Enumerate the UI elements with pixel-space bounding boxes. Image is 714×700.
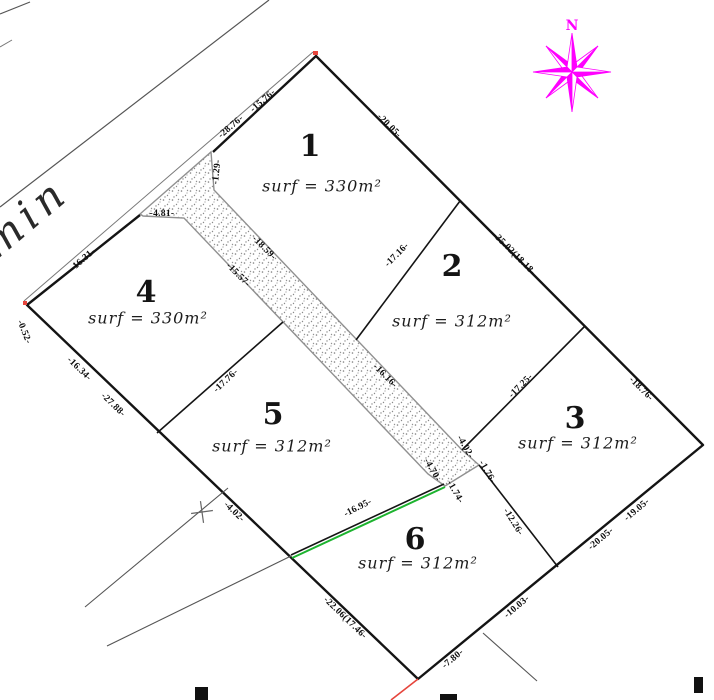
dimension-label: -22.06(17.46- <box>321 594 369 641</box>
lot-number: 4 <box>136 275 157 310</box>
tie-line-bottom-right <box>483 633 537 681</box>
dimension-label: -15.76- <box>249 88 278 115</box>
dimension-label: -1.76- <box>476 459 497 485</box>
compass-north-label: N <box>566 18 579 34</box>
red-boundary-line <box>391 679 418 700</box>
bottom-cutoff-mark-2 <box>440 694 457 700</box>
lot-surface: surf = 312m² <box>212 437 332 456</box>
lot-number: 1 <box>300 129 321 164</box>
lot-number: 6 <box>405 522 426 557</box>
dimension-label: -16.34- <box>65 355 93 383</box>
lot-surface: surf = 312m² <box>392 312 512 331</box>
dimension-label: -18.76- <box>627 375 655 403</box>
lot-number: 2 <box>442 249 463 284</box>
dimension-labels-layer: -15.76--28.76--1.29--4.81--16.31--0.52--… <box>15 88 655 671</box>
adjacent-line-2 <box>107 556 291 646</box>
dimension-label: -0.52- <box>15 319 34 346</box>
bottom-cutoff-mark-1 <box>195 687 208 700</box>
lot-number: 3 <box>565 401 586 436</box>
dimension-label: -4.81- <box>150 209 175 219</box>
survey-plan-drawing: chemin N 1surf = 330m²2surf = 312m²3surf… <box>0 0 714 700</box>
adjacent-line-1 <box>85 488 228 607</box>
survey-cross-mark <box>190 500 215 525</box>
dimension-label: -1.74- <box>444 479 465 505</box>
dimension-label: -1.29- <box>211 159 224 185</box>
dimension-label: -35.02(18.18- <box>490 230 537 277</box>
red-corner-mark-top <box>313 51 318 55</box>
road-label: chemin <box>0 167 78 328</box>
red-corner-mark-left <box>23 301 27 305</box>
bottom-cutoff-mark-3 <box>694 677 703 693</box>
lot-number: 5 <box>263 397 284 432</box>
survey-plan-canvas: chemin N 1surf = 330m²2surf = 312m²3surf… <box>0 0 714 700</box>
lot-surface: surf = 312m² <box>358 554 478 573</box>
dimension-label: -12.26- <box>501 507 525 538</box>
lot-surface: surf = 312m² <box>518 434 638 453</box>
dimension-label: -17.25- <box>507 372 535 400</box>
road-corner-line <box>0 2 30 14</box>
lot-surface: surf = 330m² <box>262 177 382 196</box>
dimension-label: -17.16- <box>383 241 411 269</box>
road-corner-tick <box>0 40 12 47</box>
lot-surface: surf = 330m² <box>88 309 208 328</box>
dimension-label: -16.95- <box>343 497 374 519</box>
compass-star-icon <box>533 33 611 112</box>
dimension-label: -19.05- <box>622 497 651 524</box>
dimension-label: -20.05- <box>375 112 403 140</box>
compass-rose: N <box>533 18 611 112</box>
